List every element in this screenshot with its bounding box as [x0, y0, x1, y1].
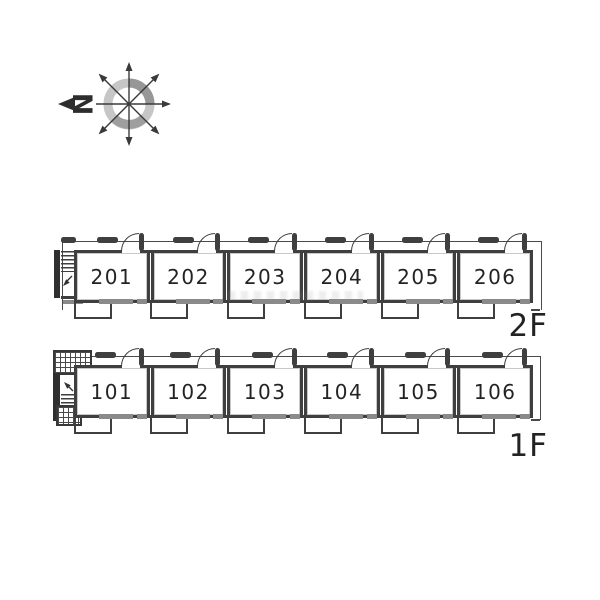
room-cell: 106 [457, 365, 533, 418]
corridor-window [402, 237, 423, 243]
site-plan: N 201 202 203 [0, 0, 600, 600]
door-leaf-icon [215, 233, 220, 251]
room-cell: 105 [381, 365, 457, 418]
window-bar [443, 299, 453, 304]
stair-arrow-icon [61, 274, 74, 287]
room-number: 206 [474, 265, 517, 289]
room-cell: 206 [457, 250, 533, 303]
door-swing-icon [121, 348, 139, 366]
door-leaf-icon [445, 348, 450, 366]
compass-rose-graphic: N [54, 29, 204, 179]
room-cell: 201 [74, 250, 150, 303]
window-bar [290, 414, 300, 419]
door-leaf-icon [369, 233, 374, 251]
window-bar [329, 299, 363, 304]
door-leaf-icon [139, 233, 144, 251]
corridor-window [327, 352, 348, 358]
door-leaf-icon [445, 233, 450, 251]
room-number: 101 [90, 380, 133, 404]
door-leaf-icon [292, 233, 297, 251]
corridor-window [95, 352, 116, 358]
room-number: 205 [397, 265, 440, 289]
door-swing-icon [427, 233, 445, 251]
window-bar [290, 299, 300, 304]
window-bar [252, 414, 286, 419]
window-bar [176, 414, 210, 419]
room-cell: 104 [304, 365, 380, 418]
corridor-window [97, 237, 118, 243]
window-bar [329, 414, 363, 419]
window-bar [99, 414, 133, 419]
room-cell: 102 [151, 365, 227, 418]
door-swing-icon [121, 233, 139, 251]
door-swing-icon [197, 348, 215, 366]
north-label: N [69, 93, 100, 116]
door-swing-icon [274, 348, 292, 366]
room-number: 204 [321, 265, 364, 289]
utility-bar [54, 250, 60, 298]
room-cell: 202 [151, 250, 227, 303]
door-swing-icon [197, 233, 215, 251]
window-bar [406, 414, 440, 419]
door-leaf-icon [292, 348, 297, 366]
corridor-window [405, 352, 426, 358]
corridor-window [252, 352, 273, 358]
compass-rose-icon: N [54, 29, 204, 179]
room-number: 102 [167, 380, 210, 404]
window-bar [99, 299, 133, 304]
door-swing-icon [274, 233, 292, 251]
door-swing-icon [504, 348, 522, 366]
window-bar [520, 299, 530, 304]
door-swing-icon [504, 233, 522, 251]
rooms-row: 101 102 103 104 105 [74, 365, 533, 418]
window-bar [252, 299, 286, 304]
door-leaf-icon [369, 348, 374, 366]
window-bar [213, 414, 223, 419]
window-bar [137, 414, 147, 419]
window-bar [213, 299, 223, 304]
corridor-window [248, 237, 269, 243]
room-number: 103 [244, 380, 287, 404]
room-number: 203 [244, 265, 287, 289]
window-bar [137, 299, 147, 304]
corridor-window [170, 352, 191, 358]
window-bar [406, 299, 440, 304]
door-leaf-icon [522, 233, 527, 251]
room-number: 202 [167, 265, 210, 289]
corridor-window [482, 352, 503, 358]
window-bar [176, 299, 210, 304]
door-swing-icon [427, 348, 445, 366]
outline-stub [531, 419, 540, 421]
floor-block-1f: 101 102 103 104 105 [0, 347, 600, 465]
room-cell: 205 [381, 250, 457, 303]
room-number: 201 [90, 265, 133, 289]
room-number: 106 [474, 380, 517, 404]
window-bar [367, 414, 377, 419]
room-cell: 103 [227, 365, 303, 418]
window-bar [482, 414, 516, 419]
door-leaf-icon [139, 348, 144, 366]
door-swing-icon [351, 348, 369, 366]
floor-label: 1F [508, 428, 548, 464]
window-bar [482, 299, 516, 304]
corridor-window [61, 237, 76, 243]
room-cell: 101 [74, 365, 150, 418]
room-number: 105 [397, 380, 440, 404]
window-bar [520, 414, 530, 419]
room-number: 104 [321, 380, 364, 404]
north-arrow-icon: N [58, 93, 100, 116]
door-swing-icon [351, 233, 369, 251]
door-leaf-icon [215, 348, 220, 366]
floor-label: 2F [508, 308, 548, 344]
corridor-window [325, 237, 346, 243]
door-leaf-icon [522, 348, 527, 366]
window-bar [443, 414, 453, 419]
corridor-window [173, 237, 194, 243]
corridor-window [478, 237, 499, 243]
window-bar [367, 299, 377, 304]
